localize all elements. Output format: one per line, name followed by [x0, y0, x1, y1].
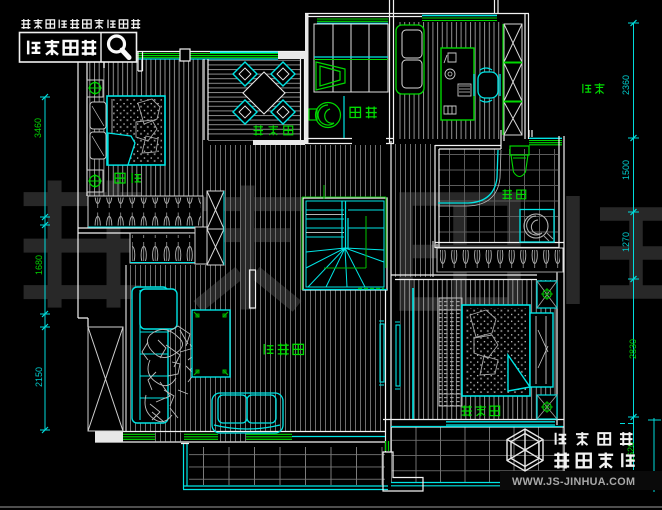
svg-text:2830: 2830	[628, 339, 638, 359]
svg-text:1500: 1500	[621, 160, 631, 180]
svg-text:1270: 1270	[621, 232, 631, 252]
svg-text:2360: 2360	[621, 75, 631, 95]
svg-text:2150: 2150	[34, 367, 44, 387]
svg-text:1680: 1680	[34, 255, 44, 275]
svg-text:WWW.JS-JINHUA.COM: WWW.JS-JINHUA.COM	[512, 476, 635, 488]
svg-text:3460: 3460	[33, 118, 43, 138]
